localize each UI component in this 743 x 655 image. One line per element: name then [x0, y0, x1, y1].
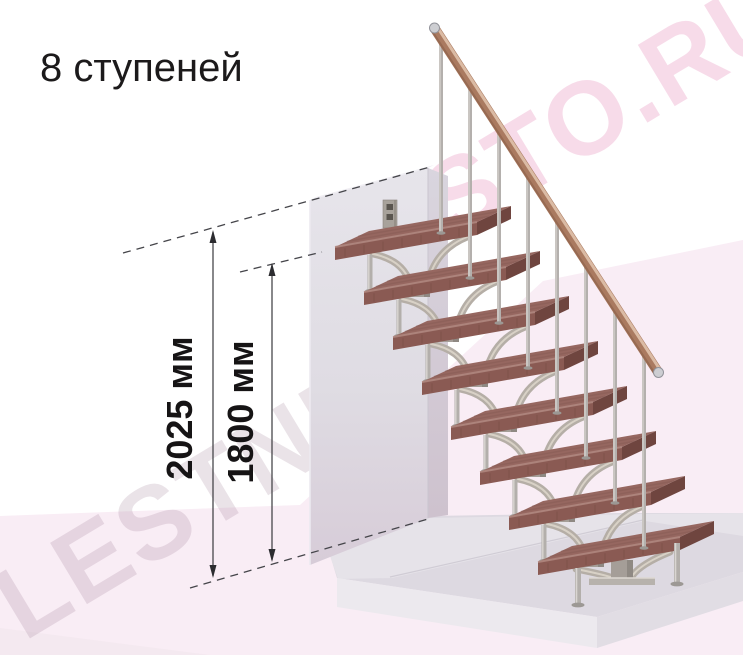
baluster-flange	[553, 411, 562, 415]
baluster-flange	[524, 366, 533, 370]
baluster-flange	[495, 321, 504, 325]
dimension-label-total-height: 2025 мм	[159, 336, 200, 479]
wall-bracket	[383, 200, 397, 228]
baluster-flange	[466, 276, 475, 280]
leg-flange	[572, 603, 585, 608]
diagram-canvas: LESTNIC STO.RU	[0, 0, 743, 655]
baluster-flange	[437, 231, 446, 235]
stringer-base-plate	[589, 578, 655, 585]
stringer-post-shade	[627, 560, 633, 580]
baluster-flange	[611, 501, 620, 505]
baluster-flange	[640, 546, 649, 550]
handrail-cap-top	[430, 23, 440, 33]
dimension-label-steps-height: 1800 мм	[220, 340, 261, 483]
staircase-diagram: LESTNIC STO.RU	[0, 0, 743, 655]
page-title: 8 ступеней	[40, 46, 243, 90]
baluster-flange	[582, 456, 591, 460]
leg-flange	[671, 582, 684, 587]
handrail-cap-bottom	[654, 368, 664, 378]
